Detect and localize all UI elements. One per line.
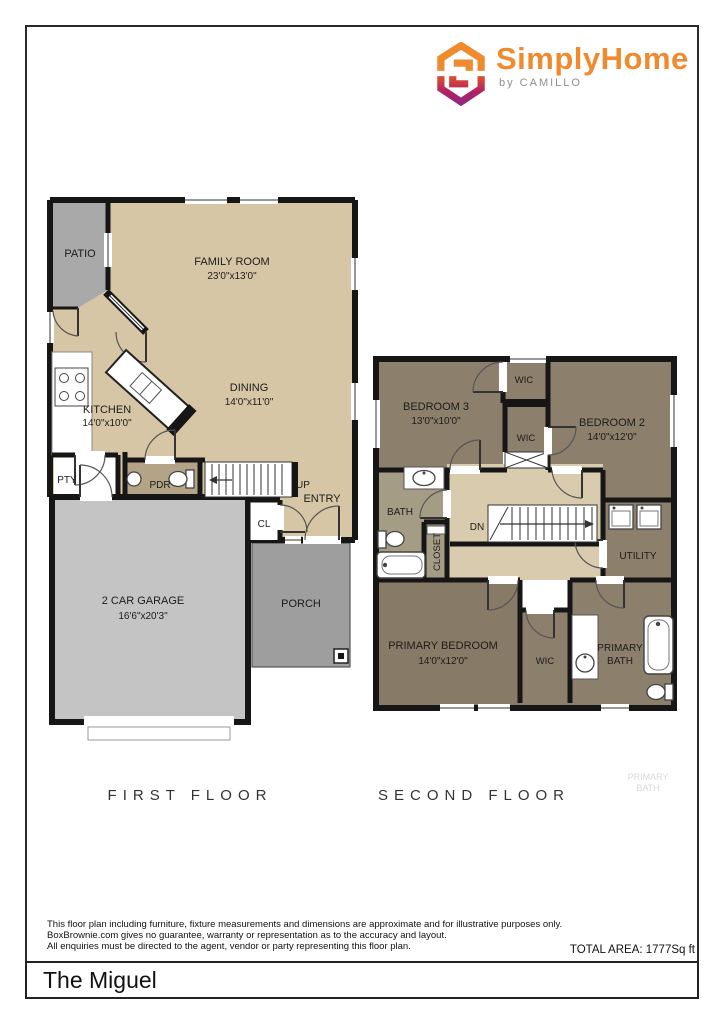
disclaimer-line-2: BoxBrownie.com gives no guarantee, warra… <box>47 930 562 941</box>
label-garage: 2 CAR GARAGE <box>102 595 185 607</box>
label-pantry: PTY <box>57 475 77 486</box>
linen-shelf <box>505 452 548 468</box>
label-closet: CL <box>258 519 271 530</box>
second-floor-caption: SECOND FLOOR <box>374 787 574 804</box>
pdr-toilet <box>169 470 194 488</box>
brand-wordmark: SimplyHome by CAMILLO <box>496 42 689 89</box>
label-porch: PORCH <box>281 598 321 610</box>
cooktop <box>55 368 88 406</box>
label-wic-mid: WIC <box>517 433 536 444</box>
closet-shelf <box>427 526 445 534</box>
label-bedroom2-dims: 14'0"x12'0" <box>587 432 637 443</box>
disclaimer-line-1: This floor plan including furniture, fix… <box>47 919 562 930</box>
label-dining-dims: 14'0"x11'0" <box>225 397 274 408</box>
label-entry: ENTRY <box>303 493 341 505</box>
label-primary-bath-1: PRIMARY <box>597 643 643 654</box>
second-floor-plan: BEDROOM 3 13'0"x10'0" WIC BEDROOM 2 14'0… <box>365 350 681 718</box>
label-primary-bath-2: BATH <box>607 656 633 667</box>
brand-name: SimplyHome <box>496 42 689 76</box>
label-bath: BATH <box>387 507 413 518</box>
garage-floor <box>52 497 248 722</box>
brand-logo: SimplyHome by CAMILLO <box>436 42 689 106</box>
label-bedroom3: BEDROOM 3 <box>403 401 469 413</box>
wic-mid-floor <box>505 403 548 452</box>
label-stairs-up: UP <box>296 480 310 491</box>
label-bedroom3-dims: 13'0"x10'0" <box>411 416 461 427</box>
label-primary-bedroom: PRIMARY BEDROOM <box>388 640 498 652</box>
label-dining: DINING <box>230 382 269 394</box>
first-floor-caption: FIRST FLOOR <box>90 787 290 804</box>
label-family-room-dims: 23'0"x13'0" <box>207 271 257 282</box>
label-bedroom2: BEDROOM 2 <box>579 417 645 429</box>
ghost-line-2: BATH <box>616 783 680 794</box>
porch-post <box>334 649 348 663</box>
simplyhome-house-icon <box>436 42 486 106</box>
primary-toilet <box>647 684 673 700</box>
ghost-primary-bath-text: PRIMARY BATH <box>616 772 680 794</box>
first-floor-plan: PATIO FAMILY ROOM 23'0"x13'0" KITCHEN 14… <box>40 190 370 750</box>
stairs-down <box>488 505 597 542</box>
label-powder-room: PDR <box>149 480 170 491</box>
label-family-room: FAMILY ROOM <box>194 256 269 268</box>
label-closet: CLOSET <box>432 533 443 571</box>
label-primary-bedroom-dims: 14'0"x12'0" <box>418 656 468 667</box>
label-kitchen: KITCHEN <box>83 404 131 416</box>
bath-toilet <box>378 531 404 548</box>
plan-title-box: The Miguel <box>25 961 699 999</box>
label-garage-dims: 16'6"x20'3" <box>118 611 168 622</box>
label-wic-bottom: WIC <box>536 656 555 667</box>
bath-tub <box>377 552 425 578</box>
stairs-up <box>205 462 295 497</box>
label-patio: PATIO <box>64 248 96 260</box>
label-kitchen-dims: 14'0"x10'0" <box>82 418 132 429</box>
bedroom3-floor <box>376 359 503 470</box>
brand-byline: by CAMILLO <box>496 77 689 89</box>
primary-tub <box>644 616 673 674</box>
total-area-text: TOTAL AREA: 1777Sq ft <box>440 944 695 956</box>
label-wic-top: WIC <box>515 375 534 386</box>
plan-name: The Miguel <box>43 967 157 994</box>
floor-plan-page: SimplyHome by CAMILLO <box>0 0 724 1024</box>
label-stairs-dn: DN <box>470 522 484 533</box>
ghost-line-1: PRIMARY <box>616 772 680 783</box>
pdr-sink <box>127 472 141 486</box>
label-utility: UTILITY <box>619 551 657 562</box>
